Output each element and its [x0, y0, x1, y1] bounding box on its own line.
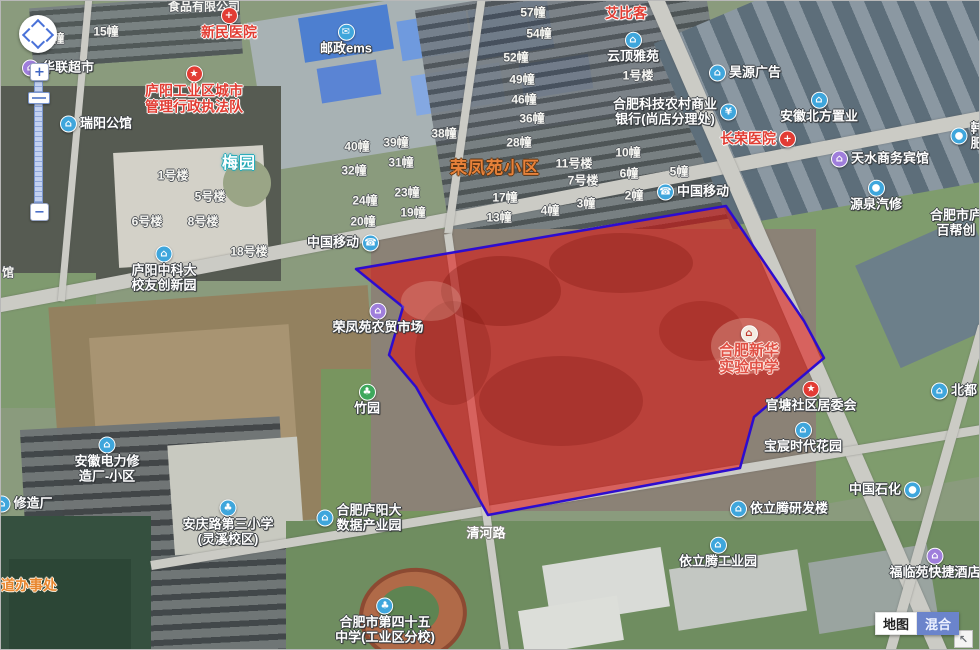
label-text: 4幢 [541, 204, 560, 217]
label-text: 长荣医院 [720, 131, 776, 147]
car-icon[interactable]: ● [950, 128, 967, 145]
hybrid-mode-button[interactable]: 混合 [917, 612, 959, 635]
label-text: 39幢 [383, 136, 408, 149]
phone-icon[interactable]: ☎ [657, 184, 674, 201]
label-text: 合肥庐阳大数据产业园 [336, 503, 401, 532]
building-label: 6幢 [620, 167, 639, 180]
hospital-icon[interactable]: + [779, 131, 796, 148]
label-text: 7号楼 [568, 174, 599, 187]
label-text: 官塘社区居委会 [765, 399, 856, 414]
label-text: 38幢 [431, 127, 456, 140]
mail-icon[interactable]: ✉ [338, 24, 355, 41]
building-label: 5号楼 [195, 190, 226, 203]
label-text: 6号楼 [132, 215, 163, 228]
bank-icon[interactable]: ¥ [720, 104, 737, 121]
label-text: 中国石化 [849, 483, 901, 498]
building-icon[interactable]: ⌂ [316, 510, 333, 527]
label-text: 合肥市第四十五中学(工业区分校) [335, 615, 435, 644]
building-label: 32幢 [341, 164, 366, 177]
building-label: 39幢 [383, 136, 408, 149]
label-text: 36幢 [519, 112, 544, 125]
label-text: 24幢 [352, 194, 377, 207]
label-text: 梅园 [222, 155, 256, 173]
hospital-icon[interactable]: + [221, 7, 238, 24]
star-icon[interactable]: ★ [802, 381, 819, 398]
building-label: 52幢 [503, 51, 528, 64]
building-label: 19幢 [400, 206, 425, 219]
label-text: 艾比客 [605, 6, 647, 22]
building-label: 17幢 [492, 191, 517, 204]
label-text: 49幢 [509, 73, 534, 86]
label-text: 荣凤苑农贸市场 [332, 321, 423, 336]
building-label: 4幢 [541, 204, 560, 217]
label-text: 云顶雅苑 [607, 50, 659, 65]
poi-xinmin-hospital[interactable]: +新民医院 [201, 7, 257, 41]
building-label: 31幢 [388, 156, 413, 169]
label-text: 20幢 [350, 215, 375, 228]
poi-bigdata-park[interactable]: ⌂合肥庐阳大数据产业园 [316, 503, 401, 532]
zoom-out-button[interactable]: − [30, 203, 49, 221]
poi-anqinglu-primary-school[interactable]: ♣安庆路第三小学(灵溪校区) [182, 499, 273, 546]
map-mode-button[interactable]: 地图 [875, 612, 917, 635]
label-text: 19幢 [400, 206, 425, 219]
building-label: 38幢 [431, 127, 456, 140]
poi-yiliteng-industrial-park[interactable]: ⌂依立腾工业园 [679, 537, 757, 570]
building-label: 36幢 [519, 112, 544, 125]
label-text: 清河路 [466, 527, 505, 542]
building-label: 57幢 [520, 6, 545, 19]
label-text: 合肥科技农村商业银行(尚店分理处) [613, 97, 717, 126]
label-text: 13幢 [486, 211, 511, 224]
label-text: 5幢 [670, 165, 689, 178]
poi-xinhua-school[interactable]: ⌂合肥新华实验中学 [719, 325, 779, 377]
building-icon[interactable]: ⌂ [794, 422, 811, 439]
poi-post-ems[interactable]: ✉邮政ems [320, 24, 372, 57]
zoom-in-button[interactable]: + [30, 63, 49, 81]
building-label: 18号楼 [230, 245, 267, 258]
poi-baochen-garden[interactable]: ⌂宝宸时代花园 [764, 422, 842, 455]
label-text: 15幢 [93, 25, 118, 38]
poi-ustc-innovation-park[interactable]: ⌂庐阳中科大校友创新园 [131, 245, 196, 292]
label-text: 1号楼 [158, 169, 189, 182]
poi-farmers-market[interactable]: ⌂荣凤苑农贸市场 [332, 303, 423, 336]
partial-poi-right-edge[interactable]: ●韩肥 [950, 121, 980, 150]
label-text: 40幢 [344, 140, 369, 153]
poi-yiliteng-rd-building[interactable]: ⌂依立腾研发楼 [730, 501, 828, 518]
building-label: 5幢 [670, 165, 689, 178]
poi-zhuyuan-park[interactable]: ♣竹园 [354, 384, 380, 417]
poi-tianshui-hotel[interactable]: ⌂天水商务宾馆 [831, 151, 929, 168]
building-label: 8号楼 [188, 215, 219, 228]
building-label: 24幢 [352, 194, 377, 207]
building-label: 54幢 [526, 27, 551, 40]
label-text: 17幢 [492, 191, 517, 204]
poi-yuanquan-autorepair[interactable]: ●源泉汽修 [850, 180, 902, 213]
label-text: 54幢 [526, 27, 551, 40]
label-text: 源泉汽修 [850, 198, 902, 213]
building-label: 40幢 [344, 140, 369, 153]
building-label: 49幢 [509, 73, 534, 86]
area-meiyuan: 梅园 [222, 155, 256, 173]
poi-sinopec[interactable]: 中国石化● [849, 482, 921, 499]
partial-poi-beidu[interactable]: ⌂北都 [931, 383, 977, 400]
label-text: 华联超市 [42, 61, 94, 76]
badge-icon[interactable]: ★ [186, 65, 203, 82]
label-text: 1号楼 [623, 69, 654, 82]
partial-poi-xiuzaochang[interactable]: ⌂修造厂 [0, 496, 53, 513]
label-text: 合肥新华实验中学 [719, 343, 779, 377]
building-label: 28幢 [506, 136, 531, 149]
label-text: 瑞阳公馆 [80, 117, 132, 132]
building-icon[interactable]: ⌂ [624, 32, 641, 49]
area-rongfengyuan: 荣凤苑小区 [450, 158, 540, 177]
label-text: 合肥市庐百帮创 [930, 208, 980, 237]
label-text: 8号楼 [188, 215, 219, 228]
building-label: 1号楼 [623, 69, 654, 82]
label-text: 6幢 [620, 167, 639, 180]
label-text: 北都 [951, 384, 977, 399]
label-text: 11号楼 [556, 157, 593, 170]
poi-fulinyuan-hotel[interactable]: ⌂福临苑快捷酒店 [889, 548, 980, 581]
partial-label-guan: 馆 [2, 266, 14, 279]
label-text: 3幢 [577, 197, 596, 210]
map-type-toggle[interactable]: 地图混合 [875, 612, 959, 635]
label-text: 宝宸时代花园 [764, 440, 842, 455]
building-label: 46幢 [511, 93, 536, 106]
poi-guantang-committee[interactable]: ★官塘社区居委会 [765, 381, 856, 414]
label-text: 28幢 [506, 136, 531, 149]
label-text: 中国移动 [677, 185, 729, 200]
label-text: 安徽电力修造厂-小区 [74, 454, 139, 483]
poi-no45-middle-school[interactable]: ♣合肥市第四十五中学(工业区分校) [335, 597, 435, 644]
label-text: 依立腾工业园 [679, 555, 757, 570]
label-text: 安庆路第三小学(灵溪校区) [182, 517, 273, 546]
poi-ruiyang-mansion[interactable]: ⌂瑞阳公馆 [60, 116, 132, 133]
partial-poi-baibang: 合肥市庐百帮创 [930, 208, 980, 237]
label-text: 52幢 [503, 51, 528, 64]
building-label: 3幢 [577, 197, 596, 210]
tree-icon[interactable]: ♣ [358, 384, 375, 401]
phone-icon[interactable]: ☎ [362, 235, 379, 252]
building-label: 23幢 [394, 186, 419, 199]
label-text: 依立腾研发楼 [750, 502, 828, 517]
label-text: 竹园 [354, 402, 380, 417]
label-text: 2幢 [625, 189, 644, 202]
building-label: 10幢 [615, 146, 640, 159]
poi-china-mobile-west[interactable]: 中国移动☎ [307, 235, 379, 252]
market-icon[interactable]: ⌂ [369, 303, 386, 320]
label-text: 32幢 [341, 164, 366, 177]
building-icon[interactable]: ⌂ [730, 501, 747, 518]
label-text: 邮政ems [320, 42, 372, 57]
label-text: 天水商务宾馆 [851, 152, 929, 167]
building-label: 11号楼 [556, 157, 593, 170]
label-text: 安徽北方置业 [780, 110, 858, 125]
label-text: 庐阳中科大校友创新园 [131, 263, 196, 292]
zoom-handle[interactable] [28, 92, 50, 104]
building-icon[interactable]: ⌂ [709, 65, 726, 82]
building-label: 20幢 [350, 215, 375, 228]
building-label: 1号楼 [158, 169, 189, 182]
map-canvas[interactable]: 食品有限公司4幢15幢⌂华联超市+新民医院✉邮政ems★庐阳工业区城市管理行政执… [0, 0, 980, 650]
hotel-icon[interactable]: ⌂ [831, 151, 848, 168]
fuel-icon[interactable]: ● [904, 482, 921, 499]
satellite-patch [9, 559, 131, 650]
label-text: 中国移动 [307, 236, 359, 251]
building-label: 7号楼 [568, 174, 599, 187]
label-text: 31幢 [388, 156, 413, 169]
label-text: 46幢 [511, 93, 536, 106]
label-text: 新民医院 [201, 25, 257, 41]
building-icon[interactable]: ⌂ [98, 436, 115, 453]
label-text: 馆 [2, 266, 14, 279]
poi-china-mobile-north[interactable]: ☎中国移动 [657, 184, 729, 201]
label-text: 57幢 [520, 6, 545, 19]
poi-changrong-hospital[interactable]: 长荣医院+ [720, 131, 796, 148]
building-icon[interactable]: ⌂ [0, 496, 10, 513]
school-icon[interactable]: ♣ [219, 499, 236, 516]
label-text: 23幢 [394, 186, 419, 199]
road-qinghe-road: 清河路 [466, 527, 505, 542]
label-text: 荣凤苑小区 [450, 158, 540, 177]
building-icon[interactable]: ⌂ [60, 116, 77, 133]
poi-rural-bank[interactable]: 合肥科技农村商业银行(尚店分理处)¥ [613, 97, 737, 126]
building-icon[interactable]: ⌂ [709, 537, 726, 554]
label-text: 韩肥 [970, 121, 980, 150]
label-text: 修造厂 [13, 497, 52, 512]
poi-aibike: 艾比客 [605, 6, 647, 22]
building-label: 6号楼 [132, 215, 163, 228]
label-text: 庐阳工业区城市管理行政执法队 [145, 83, 243, 114]
building-icon[interactable]: ⌂ [931, 383, 948, 400]
label-text: 10幢 [615, 146, 640, 159]
poi-haoyuan-ad[interactable]: ⌂昊源广告 [709, 65, 781, 82]
building-label: 13幢 [486, 211, 511, 224]
poi-electric-repair-estate[interactable]: ⌂安徽电力修造厂-小区 [74, 436, 139, 483]
label-text: 福临苑快捷酒店 [889, 566, 980, 581]
pan-control[interactable] [19, 15, 57, 53]
poi-urban-enforcement[interactable]: ★庐阳工业区城市管理行政执法队 [145, 65, 243, 114]
school-icon[interactable]: ⌂ [740, 325, 757, 342]
building-icon[interactable]: ⌂ [155, 245, 172, 262]
building-label: 15幢 [93, 25, 118, 38]
car-icon[interactable]: ● [867, 180, 884, 197]
label-text: 昊源广告 [729, 66, 781, 81]
poi-north-anhui-realty[interactable]: ⌂安徽北方置业 [780, 92, 858, 125]
label-text: 5号楼 [195, 190, 226, 203]
label-text: 道办事处 [1, 578, 57, 594]
school-icon[interactable]: ♣ [376, 597, 393, 614]
partial-area-street-office: 道办事处 [1, 578, 57, 594]
building-icon[interactable]: ⌂ [810, 92, 827, 109]
building-label: 2幢 [625, 189, 644, 202]
label-text: 18号楼 [230, 245, 267, 258]
poi-yunding-yayuan[interactable]: ⌂云顶雅苑 [607, 32, 659, 65]
hotel-icon[interactable]: ⌂ [926, 548, 943, 565]
